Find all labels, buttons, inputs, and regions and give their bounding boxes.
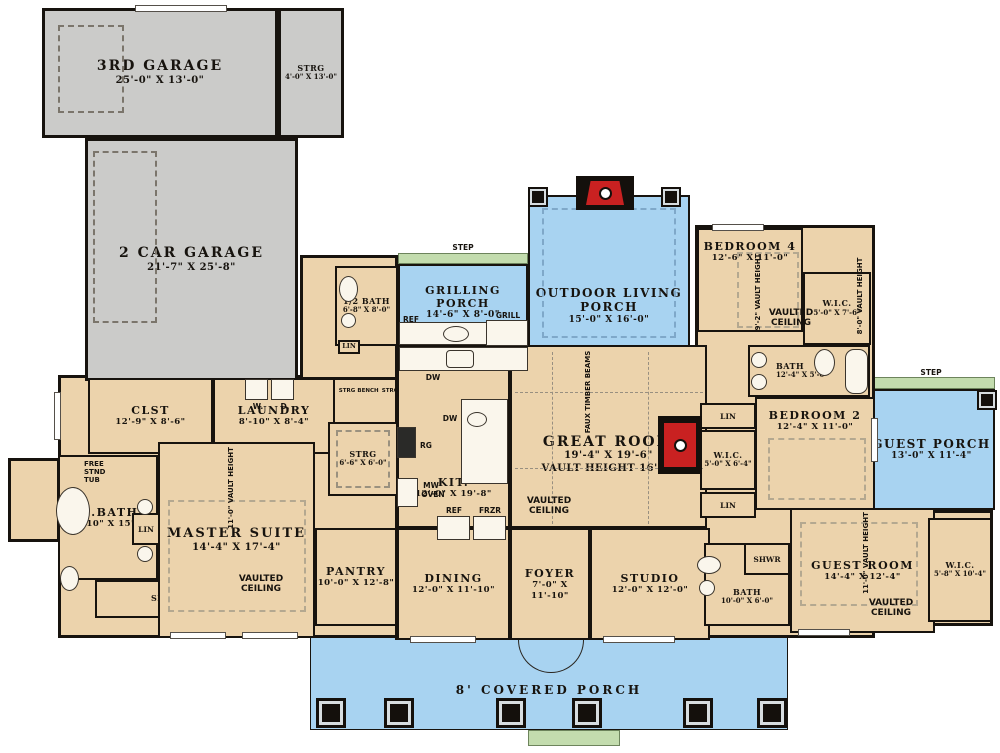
bed-outline [768,438,866,500]
toilet [60,566,79,591]
grill-label: GRILL [496,311,520,320]
room-dims: 19'-4" X 19'-6" [564,450,653,463]
window [242,632,298,639]
oven-label: OVEN [421,490,444,499]
sink [699,580,715,596]
step-grilling-porch [398,253,528,264]
dw-label: DW [426,373,441,382]
step-front-porch [528,730,620,746]
room-label: 8' COVERED PORCH [456,683,643,697]
mw-label: MW [423,481,439,490]
refrigerator [437,516,470,540]
room-label: FOYER [525,567,575,580]
room-dims: 25'-0" X 13'-0" [116,75,205,88]
freezer [473,516,506,540]
freestanding-tub [56,487,90,535]
room-guest-porch: GUEST PORCH 13'-0" X 11'-4" [868,389,995,510]
window [54,392,61,440]
vault-height-label: 9'-2" VAULT HEIGHT [754,250,762,334]
toilet [814,349,835,376]
bench-label: BENCH [357,388,378,394]
sink [751,352,767,368]
window [712,224,764,231]
outdoor-sink [443,326,469,342]
room-vault-note: VAULT HEIGHT 16'-6" [541,463,675,476]
room-wic-guest: W.I.C. 5'-8" X 10'-4" [928,518,992,622]
room-dims: 8'-10" X 8'-4" [239,417,309,428]
window [871,418,878,462]
frzr-label: FRZR [479,506,501,515]
room-dims: 12'-0" X 12'-0" [612,585,689,596]
room-dims: 7'-0" X 11'-10" [512,580,588,601]
linen-label: LIN [720,501,736,510]
vault-height-label: 11'-0" VAULT HEIGHT [862,511,870,595]
step-label: STEP [452,243,473,252]
room-label: CLST [131,404,170,417]
dw-label: DW [443,414,458,423]
window [135,5,227,12]
linen-label: LIN [720,412,736,421]
free-standing-tub-label: FREE STND TUB [84,460,122,484]
garage-bay-outline [93,151,157,323]
linen-closet: LIN [700,403,756,429]
room-garage-storage: STRG 4'-0" X 13'-0" [278,8,344,138]
window [798,629,850,636]
porch-column [686,701,710,725]
porch-column [760,701,784,725]
island-sink [467,412,487,427]
toilet [339,276,358,302]
room-dining: DINING 12'-0" X 11'-10" [397,528,510,640]
toilet [697,556,721,574]
cubby-label: STRG [339,388,355,394]
storage-shelf-outline [336,430,390,488]
window [170,632,226,639]
ref-label: REF [403,315,419,324]
sink [751,374,767,390]
dryer-label: D. [280,402,289,411]
range-appliance [397,427,416,458]
cubby-label: STRG [382,388,398,394]
dryer [271,379,294,400]
window [603,636,675,643]
room-dims: 5'-0" X 6'-4" [704,460,751,469]
room-dims: 4'-0" X 13'-0" [285,73,337,82]
washer [245,379,268,400]
room-dims: 12'-9" X 8'-6" [115,417,185,428]
vault-height-label: 11'-0" VAULT HEIGHT [227,446,235,530]
room-label: BEDROOM 2 [769,409,862,422]
room-dims: 10'-0" X 12'-8" [318,578,395,589]
room-label: DINING [424,572,482,585]
step-label: STEP [920,368,941,377]
porch-column [319,701,343,725]
floor-plan: OUTDOOR LIVING PORCH 15'-0" X 16'-0" GRI… [0,0,1000,753]
linen-label: LIN [342,343,356,351]
vaulted-ceiling-label: VAULTED CEILING [230,574,292,595]
porch-column [575,701,599,725]
outdoor-fireplace [586,181,624,205]
room-dims: 10'-0" X 6'-0" [721,597,773,606]
room-label: STUDIO [621,572,680,585]
rg-label: RG [420,441,432,450]
room-label: PANTRY [326,565,386,578]
room-label: GRILLING PORCH [400,284,526,310]
vaulted-ceiling-label: VAULTED CEILING [860,598,922,619]
great-room-fireplace [664,423,696,467]
room-label: LAUNDRY [238,404,311,417]
room-dims: 12'-0" X 11'-10" [412,585,495,596]
window [410,636,476,643]
shower-label: SHWR [753,555,780,564]
linen-closet: LIN [338,340,360,354]
sink [341,313,356,328]
ceiling-beam-line [515,392,703,393]
faux-timber-beams-label: FAUX TIMBER BEAMS [584,350,592,434]
vaulted-ceiling-label: VAULTED CEILING [518,496,580,517]
room-studio: STUDIO 12'-0" X 12'-0" [590,528,710,640]
room-dims: 12'-4" X 11'-0" [777,422,854,433]
ceiling-beam-line [648,352,649,524]
room-dims: 5'-8" X 10'-4" [934,570,986,579]
vault-height-label: 8'-0" VAULT HEIGHT [856,254,864,338]
porch-column [663,189,679,205]
bathtub [845,349,868,394]
porch-ceiling-outline [542,208,676,338]
bed-outline [168,500,306,612]
room-guest-shower: SHWR [744,543,790,575]
wall-oven [397,478,418,507]
room-foyer: FOYER 7'-0" X 11'-10" [510,528,590,640]
porch-column [530,189,546,205]
room-label: GUEST PORCH [872,437,990,451]
room-dims: 13'-0" X 11'-4" [891,451,972,462]
linen-closet: LIN [132,513,160,545]
porch-column [387,701,411,725]
ref-label: REF [446,506,462,515]
linen-closet: LIN [700,492,756,518]
porch-column [979,392,995,408]
sink [137,546,153,562]
washer-label: W. [253,402,264,411]
kitchen-island [461,399,508,484]
sink [137,499,153,515]
garage-bay-outline [58,25,124,113]
bed-outline [800,522,918,606]
kitchen-sink [446,350,474,368]
linen-label: LIN [138,525,154,534]
porch-column [499,701,523,725]
room-pantry: PANTRY 10'-0" X 12'-8" [315,528,397,626]
vaulted-ceiling-label: VAULTED CEILING [760,308,822,329]
room-label: GREAT ROOM [543,434,674,451]
tub-bay [8,458,60,542]
room-wic-bedroom2: W.I.C. 5'-0" X 6'-4" [700,430,756,490]
room-dims: 21'-7" X 25'-8" [147,262,236,275]
step-guest-porch [868,377,995,389]
grill-appliance [486,320,528,346]
